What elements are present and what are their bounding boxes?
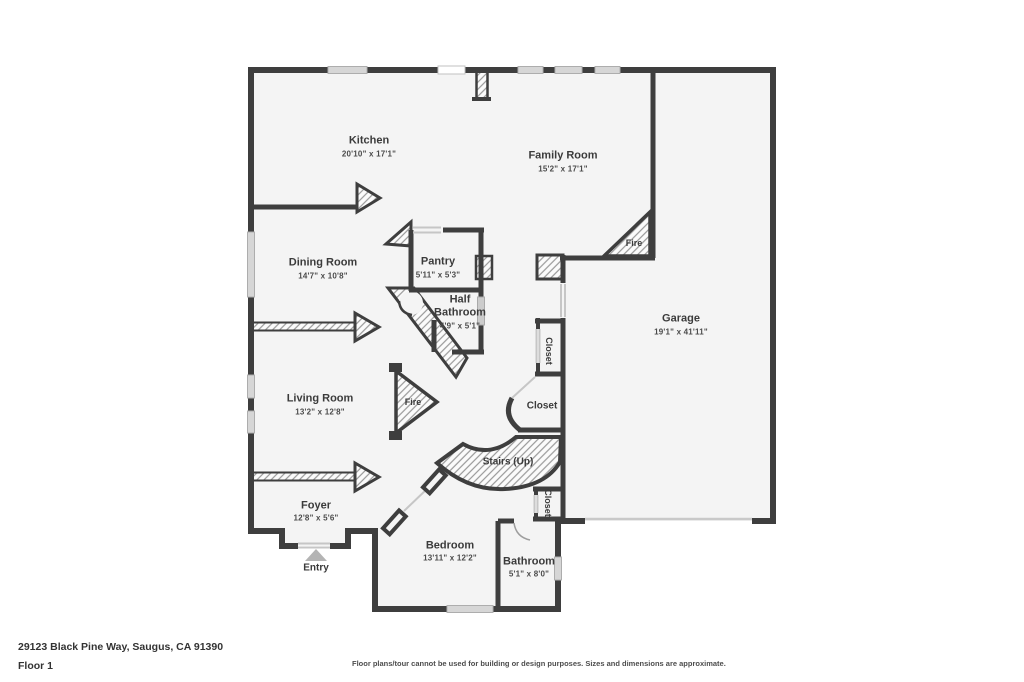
room-label-bathroom: Bathroom [503, 556, 555, 569]
footer-floor-label: Floor 1 [18, 660, 53, 672]
footer-disclaimer: Floor plans/tour cannot be used for buil… [352, 659, 726, 668]
stairs-label: Stairs (Up) [483, 456, 534, 468]
fireplace-label-family: Fire [626, 238, 643, 248]
floorplan-drawing [0, 0, 1024, 682]
entry-marker-triangle [305, 549, 327, 561]
footer-address: 29123 Black Pine Way, Saugus, CA 91390 [18, 641, 223, 653]
room-dims-pantry: 5'11" x 5'3" [416, 270, 461, 279]
room-dims-bathroom: 5'1" x 8'0" [509, 569, 549, 578]
room-label-dining-room: Dining Room [289, 257, 357, 270]
room-label-family-room: Family Room [528, 150, 597, 163]
room-label-kitchen: Kitchen [349, 135, 389, 148]
floorplan-page: Kitchen 20'10" x 17'1" Family Room 15'2"… [0, 0, 1024, 682]
closet-label-middle: Closet [527, 400, 558, 412]
room-label-half-bathroom: Half Bathroom [427, 293, 493, 318]
room-dims-bedroom: 13'11" x 12'2" [423, 553, 477, 562]
room-dims-half-bathroom: 4'9" x 5'1" [440, 321, 480, 330]
fireplace-label-living: Fire [405, 397, 422, 407]
room-label-pantry: Pantry [421, 256, 455, 269]
entry-label: Entry [303, 562, 329, 574]
room-dims-family-room: 15'2" x 17'1" [538, 164, 588, 173]
room-dims-living-room: 13'2" x 12'8" [295, 407, 345, 416]
closet-label-lower: Closet [543, 489, 553, 517]
room-dims-dining-room: 14'7" x 10'8" [298, 271, 348, 280]
room-label-foyer: Foyer [301, 500, 331, 513]
room-label-garage: Garage [662, 313, 700, 326]
closet-label-upper: Closet [544, 337, 554, 365]
room-dims-garage: 19'1" x 41'11" [654, 327, 708, 336]
room-label-bedroom: Bedroom [426, 540, 474, 553]
room-dims-kitchen: 20'10" x 17'1" [342, 149, 396, 158]
room-dims-foyer: 12'8" x 5'6" [294, 513, 339, 522]
floor-area [251, 70, 773, 609]
kitchen-slider [438, 66, 465, 74]
room-label-living-room: Living Room [287, 393, 354, 406]
